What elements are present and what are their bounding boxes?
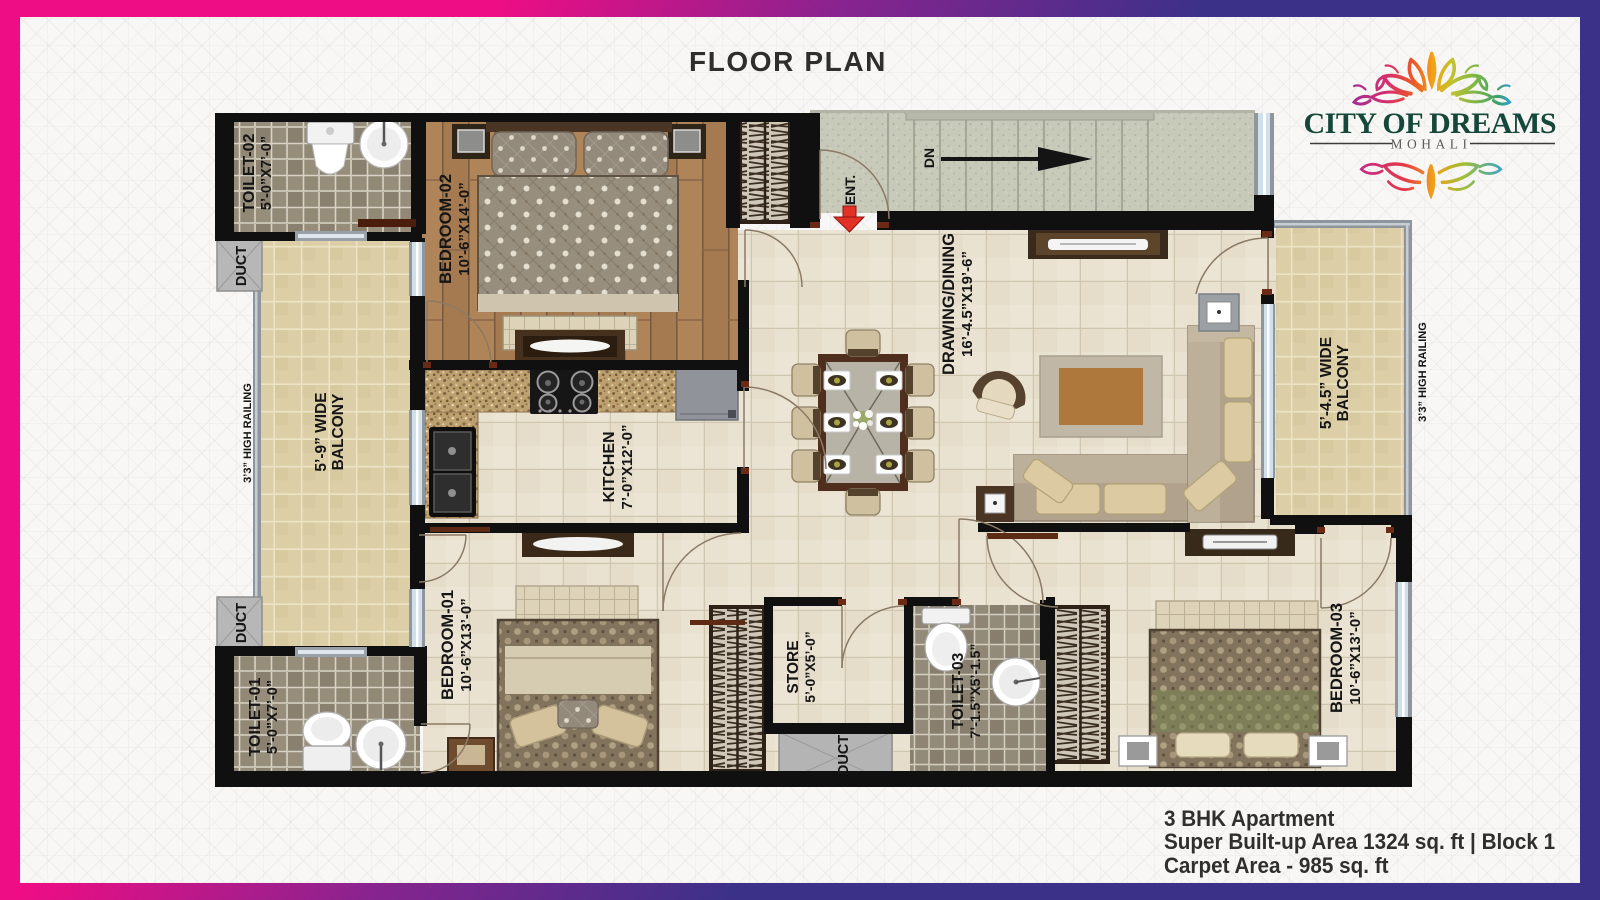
svg-text:KITCHEN: KITCHEN bbox=[601, 431, 618, 502]
svg-text:3’3” HIGH RAILING: 3’3” HIGH RAILING bbox=[1417, 322, 1429, 422]
svg-text:5’-0”X5’-0”: 5’-0”X5’-0” bbox=[802, 631, 818, 703]
svg-text:5’-0”X7’-0”: 5’-0”X7’-0” bbox=[259, 136, 275, 210]
svg-text:DUCT: DUCT bbox=[836, 735, 852, 775]
svg-text:BEDROOM-03: BEDROOM-03 bbox=[1328, 603, 1346, 713]
svg-text:10’-6”X13’-0”: 10’-6”X13’-0” bbox=[458, 598, 475, 691]
svg-text:5’-0”X7’-0”: 5’-0”X7’-0” bbox=[265, 680, 281, 754]
svg-text:ENT.: ENT. bbox=[842, 175, 858, 205]
svg-text:TOILET-02: TOILET-02 bbox=[241, 133, 258, 212]
svg-text:BALCONY: BALCONY bbox=[330, 393, 347, 470]
svg-text:5’-9” WIDE: 5’-9” WIDE bbox=[313, 392, 330, 471]
svg-text:STORE: STORE bbox=[785, 640, 802, 693]
svg-text:16’-4.5”X19’-6”: 16’-4.5”X19’-6” bbox=[959, 251, 976, 357]
svg-text:5’-4.5” WIDE: 5’-4.5” WIDE bbox=[1318, 337, 1335, 429]
svg-text:DN: DN bbox=[921, 148, 937, 168]
svg-text:BEDROOM-01: BEDROOM-01 bbox=[439, 590, 457, 700]
svg-text:DRAWING/DINING: DRAWING/DINING bbox=[940, 233, 958, 375]
svg-text:BALCONY: BALCONY bbox=[1335, 344, 1352, 421]
svg-text:BEDROOM-02: BEDROOM-02 bbox=[437, 174, 455, 284]
svg-text:10’-6”X13’-0”: 10’-6”X13’-0” bbox=[1347, 611, 1364, 704]
svg-text:7’-1.5”X5’-1.5”: 7’-1.5”X5’-1.5” bbox=[967, 644, 983, 739]
svg-text:DUCT: DUCT bbox=[234, 246, 250, 286]
svg-text:10’-6”X14’-0”: 10’-6”X14’-0” bbox=[456, 182, 473, 275]
svg-text:DUCT: DUCT bbox=[234, 603, 250, 643]
svg-text:7’-0”X12’-0”: 7’-0”X12’-0” bbox=[619, 424, 636, 509]
svg-text:3’3” HIGH RAILING: 3’3” HIGH RAILING bbox=[242, 383, 254, 483]
svg-text:TOILET-01: TOILET-01 bbox=[247, 677, 264, 756]
svg-text:TOILET-03: TOILET-03 bbox=[950, 652, 967, 729]
